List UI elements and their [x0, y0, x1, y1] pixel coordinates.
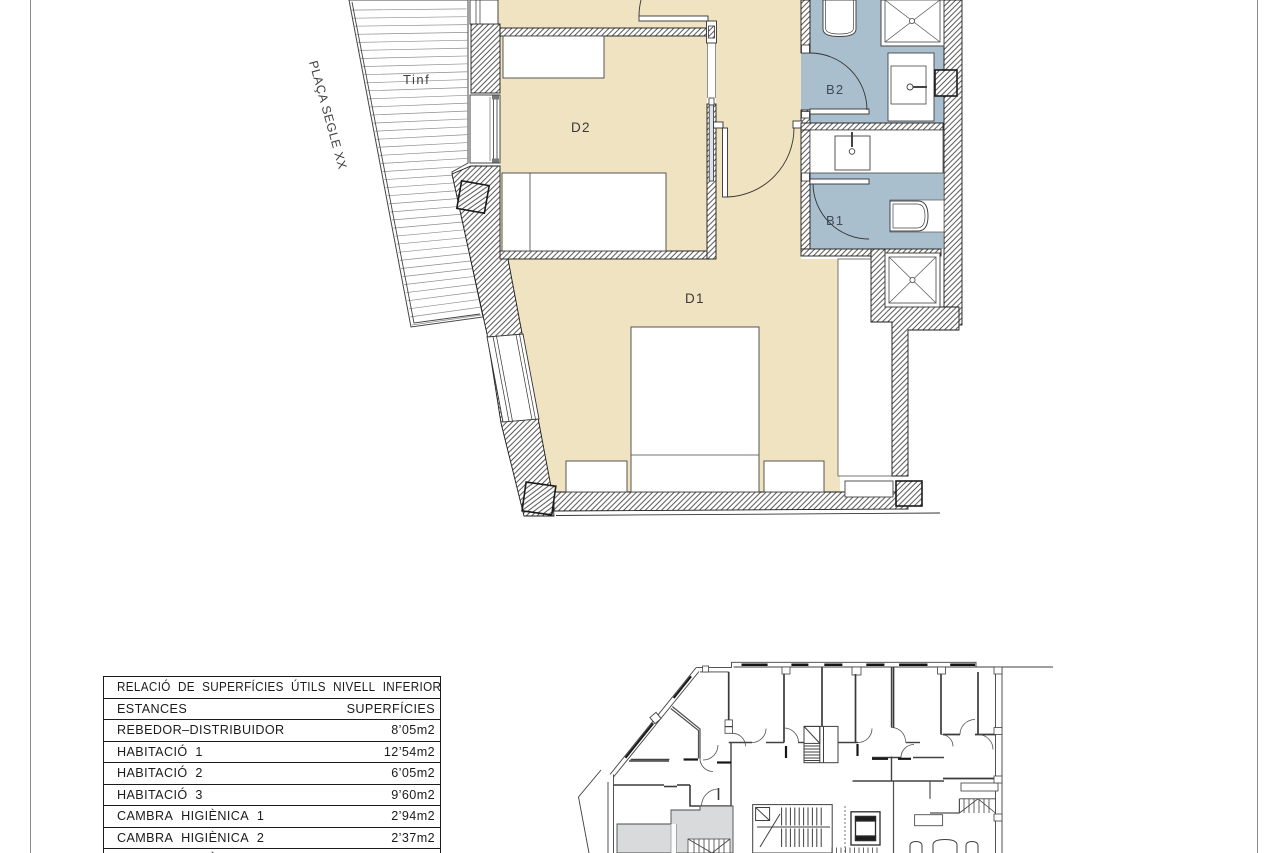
svg-text:D2: D2	[571, 120, 591, 135]
svg-text:B2: B2	[826, 82, 844, 97]
svg-text:PLAÇA SEGLE XX: PLAÇA SEGLE XX	[306, 59, 350, 171]
svg-text:Tinf: Tinf	[403, 72, 430, 87]
svg-text:B1: B1	[826, 213, 844, 228]
svg-text:D1: D1	[685, 291, 705, 306]
